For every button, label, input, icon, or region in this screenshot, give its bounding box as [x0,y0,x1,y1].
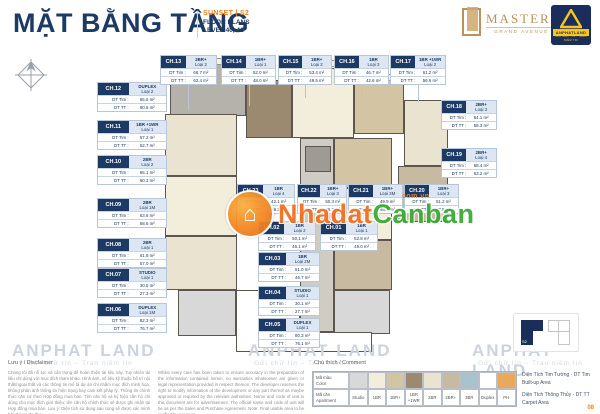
area-value-tt: 57.0 m² [129,261,166,266]
unit-card-CH.09: CH.092BRLoại 1MDT Tim :63.6 m²DT TT :58.… [97,198,167,228]
area-value-tim: 68.4 m² [466,163,496,168]
area-value-tim: 66.7 m² [186,70,216,75]
area-value-tt: 48.0 m² [246,78,275,83]
masteri-logo: MASTERI GRAND AVENUE [462,8,557,36]
area-row-tt: DT TT :62.4 m² [161,76,216,84]
card-leader-line [188,82,189,110]
area-row-tt: DT TT :49.0 m² [321,242,377,250]
area-label-tt: DT TT : [222,78,246,83]
disclaimer-vietnamese: Chúng tôi đã nỗ lực và cẩn trọng để hoàn… [8,370,150,414]
unit-type-variant: Loại 2 [141,162,153,167]
unit-type: 1BR+Loại 1 [246,56,275,68]
unit-code: CH.17 [391,56,415,68]
legend-table: Mã màu ColorMã căn ApartmentStudio1BR1BR… [312,371,517,407]
unit-type: STUDIOLoại 1 [129,269,166,281]
unit-card-header: CH.132BR+Loại 2 [161,56,216,68]
unit-card-CH.16: CH.161BRLoại 3DT Tim :46.7 m²DT TT :42.6… [334,55,389,85]
legend-swatch-2BR+ [442,372,461,389]
area-value-tt: 27.7 m² [286,309,319,314]
card-leader-line [418,82,419,102]
unit-type: DUPLEXLoại 1 [286,319,319,331]
area-label-tim: DT Tim : [98,253,129,258]
floor-plan-page: MẶT BẰNG TẦNG SUNSET | S2 FLOOR PLANS LE… [0,0,600,414]
unit-card-header: CH.04STUDIOLoại 1 [259,287,319,299]
area-label-tim: DT Tim : [98,283,129,288]
area-label-tt: DT TT : [98,291,129,296]
area-value-tt: 27.3 m² [129,291,166,296]
unit-code: CH.11 [98,121,129,133]
unit-card-header: CH.05DUPLEXLoại 1 [259,319,319,331]
carpet-area-note: Diện Tích Thông Thủy - DT TT Carpet Area [522,392,590,407]
legend-swatch-Duplex [479,372,498,389]
disclaimer-english: Whilst every care has been taken to ensu… [158,370,304,414]
area-label-tim: DT Tim : [259,301,286,306]
area-row-tim: DT Tim :65.1 m² [98,168,166,176]
area-row-tt: DT TT :63.2 m² [442,169,496,177]
anphatland-watermark-slogan: Gửi chữ tín – Trao niềm tin [478,360,583,367]
area-row-tt: DT TT :58.3 m² [442,121,496,129]
area-value-tim: 61.8 m² [129,253,166,258]
area-label-tt: DT TT : [98,221,129,226]
unit-code: CH.06 [98,304,129,316]
masteri-logo-name: MASTERI [486,11,557,27]
unit-type: 2BR+Loại 4 [466,149,496,161]
area-label-tim: DT Tim : [98,318,129,323]
masteri-logo-icon [462,8,481,36]
area-label-tim: DT Tim : [98,170,129,175]
keyplan-thumbnail: S2 [513,313,579,352]
area-value-tim: 65.1 m² [129,170,166,175]
unit-type-variant: Loại 2 [195,62,207,67]
legend-swatch-1BR [368,372,387,389]
unit-type-variant: Loại 1 [141,275,153,280]
anphatland-watermark-text: ANPHAT LAND [12,341,156,361]
plan-unit-block [178,290,236,336]
unit-type-variant: Loại 1M [139,205,155,210]
unit-card-header: CH.171BR +1WRLoại 2 [391,56,445,68]
anphatland-logo: ANPHATLAND GỬI CHỮ TÍN - TRAO NIỀM TIN [551,5,591,45]
area-row-tim: DT Tim :52.0 m² [222,68,275,76]
nhadatcanban-watermark: ⌂ NhadatCanban com.vn [226,190,475,238]
plan-unit-block [246,80,292,138]
unit-code: CH.15 [279,56,302,68]
plan-unit-block [165,236,237,290]
unit-code: CH.03 [259,253,286,265]
unit-type-variant: Loại 1 [297,293,309,298]
unit-card-CH.19: CH.192BR+Loại 4DT Tim :68.4 m²DT TT :63.… [441,148,497,178]
floor-plans-label: FLOOR PLANS [203,19,250,27]
unit-code: CH.10 [98,156,129,168]
project-name: SUNSET | S2 [203,10,250,19]
unit-type: 2BRLoại 1 [129,239,166,251]
unit-card-header: CH.102BRLoại 2 [98,156,166,168]
unit-type-variant: Loại 1 [141,245,153,250]
unit-card-CH.05: CH.05DUPLEXLoại 1DT Tim :80.3 m²DT TT :7… [258,318,320,348]
unit-card-header: CH.031BRLoại 2M [259,253,319,265]
area-label-tt: DT TT : [98,178,129,183]
area-value-tim: 51.0 m² [286,267,319,272]
unit-type-variant: Loại 1 [254,62,266,67]
area-label-tt: DT TT : [442,171,466,176]
area-value-tim: 46.7 m² [359,70,388,75]
area-row-tt: DT TT :42.6 m² [335,76,388,84]
area-label-tim: DT Tim : [98,135,129,140]
unit-type-variant: Loại 3 [367,62,379,67]
area-label-tt: DT TT : [259,275,286,280]
unit-card-CH.13: CH.132BR+Loại 2DT Tim :66.7 m²DT TT :62.… [160,55,217,85]
area-row-tim: DT Tim :63.6 m² [98,211,166,219]
unit-type: 2BRLoại 2 [129,156,166,168]
unit-card-CH.14: CH.141BR+Loại 1DT Tim :52.0 m²DT TT :48.… [221,55,276,85]
page-number: 08 [587,405,594,411]
unit-type-variant: Loại 4 [475,155,487,160]
unit-type: 1BR +1WRLoại 1 [129,121,166,133]
unit-type-variant: Loại 2 [141,89,153,94]
card-leader-line [249,82,250,106]
legend-swatch-PH [497,372,516,389]
compass-icon [13,57,49,93]
unit-type-variant: Loại 2 [311,62,323,67]
area-row-tt: DT TT :48.0 m² [222,76,275,84]
legend-type-label: Studio [349,389,368,406]
area-label-tim: DT Tim : [98,213,129,218]
area-row-tim: DT Tim :80.3 m² [259,331,319,339]
unit-code: CH.04 [259,287,286,299]
unit-type: 2BR+Loại 2 [186,56,216,68]
area-row-tt: DT TT :56.6 m² [391,76,445,84]
unit-type-variant: Loại 2 [424,62,436,67]
area-label-tt: DT TT : [442,123,466,128]
area-row-tt: DT TT :60.3 m² [98,176,166,184]
plan-unit-block [305,146,331,172]
keyplan-tower-outline [558,320,570,345]
area-row-tt: DT TT :46.7 m² [259,273,319,281]
header-info: SUNSET | S2 FLOOR PLANS LEVEL 40, 42 [203,10,250,35]
unit-card-header: CH.12DUPLEXLoại 2 [98,83,166,95]
area-value-tim: 63.6 m² [129,213,166,218]
unit-code: CH.07 [98,269,129,281]
area-row-tim: DT Tim :68.4 m² [442,161,496,169]
legend-type-label: Duplex [479,389,498,406]
area-label-tt: DT TT : [259,341,286,346]
area-row-tim: DT Tim :82.3 m² [98,316,166,324]
builtup-area-note: Diện Tích Tim Tường - DT Tim Built-up Ar… [522,372,590,387]
area-row-tim: DT Tim :61.2 m² [391,68,445,76]
level-label: LEVEL 40, 42 [203,27,250,35]
area-label-tim: DT Tim : [442,163,466,168]
unit-card-CH.12: CH.12DUPLEXLoại 2DT Tim :65.6 m²DT TT :6… [97,82,167,112]
area-row-tim: DT Tim :61.8 m² [98,251,166,259]
area-label-tim: DT Tim : [442,115,466,120]
unit-type: DUPLEXLoại 1M [129,304,166,316]
area-value-tim: 30.5 m² [129,283,166,288]
area-row-tim: DT Tim :53.4 m² [279,68,331,76]
area-label-tt: DT TT : [98,143,129,148]
anphat-triangle-icon [560,9,582,29]
unit-card-CH.11: CH.111BR +1WRLoại 1DT Tim :57.2 m²DT TT … [97,120,167,150]
area-value-tt: 49.0 m² [346,244,377,249]
area-label-tim: DT Tim : [222,70,246,75]
area-label-tt: DT TT : [259,309,286,314]
unit-code: CH.19 [442,149,466,161]
unit-type: 2BR+Loại 3 [466,101,496,113]
area-value-tim: 57.2 m² [129,135,166,140]
unit-card-CH.10: CH.102BRLoại 2DT Tim :65.1 m²DT TT :60.3… [97,155,167,185]
area-value-tt: 60.6 m² [129,105,166,110]
unit-type: 1BRLoại 2M [286,253,319,265]
area-value-tt: 63.2 m² [466,171,496,176]
unit-card-CH.15: CH.151BR+Loại 2DT Tim :53.4 m²DT TT :49.… [278,55,332,85]
unit-code: CH.08 [98,239,129,251]
watermark-text-orange: Nhadat [278,199,373,229]
unit-card-header: CH.07STUDIOLoại 1 [98,269,166,281]
area-label-tt: DT TT : [98,326,129,331]
area-row-tt: DT TT :76.1 m² [259,339,319,347]
keyplan-label: S2 [522,339,527,344]
watermark-text-green: Canban [373,199,475,229]
legend-apartment-row-label: Mã căn Apartment [313,389,349,406]
area-label-tim: DT Tim : [279,70,302,75]
area-label-tt: DT TT : [335,78,359,83]
nhadatcanban-wordmark: NhadatCanban com.vn [278,199,475,230]
unit-card-header: CH.182BR+Loại 3 [442,101,496,113]
area-row-tim: DT Tim :51.0 m² [259,265,319,273]
nhadatcanban-logo-icon: ⌂ [226,190,274,238]
unit-type: 1BRLoại 3 [359,56,388,68]
area-row-tim: DT Tim :30.5 m² [98,281,166,289]
area-label-tim: DT Tim : [259,267,286,272]
area-label-tt: DT TT : [161,78,186,83]
area-label-tt: DT TT : [259,244,284,249]
area-row-tim: DT Tim :66.7 m² [161,68,216,76]
area-value-tt: 46.1 m² [284,244,315,249]
area-row-tt: DT TT :49.5 m² [279,76,331,84]
area-value-tt: 49.5 m² [302,78,331,83]
unit-card-header: CH.161BRLoại 3 [335,56,388,68]
unit-card-CH.08: CH.082BRLoại 1DT Tim :61.8 m²DT TT :57.0… [97,238,167,268]
unit-card-CH.03: CH.031BRLoại 2MDT Tim :51.0 m²DT TT :46.… [258,252,320,282]
unit-code: CH.09 [98,199,129,211]
area-row-tim: DT Tim :46.7 m² [335,68,388,76]
area-value-tt: 46.7 m² [286,275,319,280]
legend-type-label: 1BR+ [386,389,405,406]
legend-heading: Chú thích / Comment [314,360,366,366]
disclaimer-heading: Lưu ý / Disclaimer [8,360,53,366]
unit-card-CH.17: CH.171BR +1WRLoại 2DT Tim :61.2 m²DT TT … [390,55,446,85]
area-row-tim: DT Tim :64.1 m² [442,113,496,121]
area-label-tim: DT Tim : [259,333,286,338]
unit-code: CH.18 [442,101,466,113]
anphat-logo-tagline: GỬI CHỮ TÍN - TRAO NIỀM TIN [551,34,591,42]
legend-type-label: 3BR [460,389,479,406]
unit-card-CH.18: CH.182BR+Loại 3DT Tim :64.1 m²DT TT :58.… [441,100,497,130]
header-divider [197,11,198,38]
unit-card-CH.07: CH.07STUDIOLoại 1DT Tim :30.5 m²DT TT :2… [97,268,167,298]
area-value-tim: 80.3 m² [286,333,319,338]
unit-code: CH.05 [259,319,286,331]
unit-card-header: CH.141BR+Loại 1 [222,56,275,68]
unit-type-variant: Loại 1M [139,310,155,315]
area-label-tim: DT Tim : [161,70,186,75]
legend-swatch-3BR [460,372,479,389]
area-value-tim: 65.6 m² [129,97,166,102]
area-value-tim: 64.1 m² [466,115,496,120]
plan-unit-block [165,114,237,176]
legend-type-label: 2BR [423,389,442,406]
unit-card-header: CH.082BRLoại 1 [98,239,166,251]
legend-color-row-label: Mã màu Color [313,372,349,389]
legend-type-label: PH [497,389,516,406]
area-row-tim: DT Tim :30.1 m² [259,299,319,307]
area-label-tt: DT TT : [98,105,129,110]
area-label-tt: DT TT : [98,261,129,266]
area-row-tt: DT TT :58.6 m² [98,219,166,227]
area-value-tim: 53.4 m² [302,70,331,75]
watermark-domain: com.vn [402,193,430,200]
area-value-tt: 56.6 m² [415,78,445,83]
unit-type-variant: Loại 1 [297,325,309,330]
area-label-tim: DT Tim : [391,70,415,75]
area-label-tt: DT TT : [391,78,415,83]
area-value-tt: 76.1 m² [286,341,319,346]
area-row-tt: DT TT :27.7 m² [259,307,319,315]
unit-card-CH.04: CH.04STUDIOLoại 1DT Tim :30.1 m²DT TT :2… [258,286,320,316]
area-label-tt: DT TT : [321,244,346,249]
unit-type: 1BR +1WRLoại 2 [415,56,445,68]
area-row-tt: DT TT :57.0 m² [98,259,166,267]
unit-code: CH.14 [222,56,246,68]
unit-type-variant: Loại 3 [475,107,487,112]
unit-card-CH.06: CH.06DUPLEXLoại 1MDT Tim :82.3 m²DT TT :… [97,303,167,333]
area-value-tt: 42.6 m² [359,78,388,83]
unit-card-header: CH.06DUPLEXLoại 1M [98,304,166,316]
plan-unit-block [334,138,392,188]
area-label-tim: DT Tim : [98,97,129,102]
unit-type-variant: Loại 1 [141,127,153,132]
area-row-tim: DT Tim :65.6 m² [98,95,166,103]
area-row-tt: DT TT :60.6 m² [98,103,166,111]
area-value-tim: 30.1 m² [286,301,319,306]
area-value-tt: 76.7 m² [129,326,166,331]
unit-card-header: CH.151BR+Loại 2 [279,56,331,68]
unit-type: 1BR+Loại 2 [302,56,331,68]
area-row-tt: DT TT :46.1 m² [259,242,315,250]
area-row-tt: DT TT :27.3 m² [98,289,166,297]
area-value-tt: 58.3 m² [466,123,496,128]
area-row-tt: DT TT :52.7 m² [98,141,166,149]
unit-type: STUDIOLoại 1 [286,287,319,299]
area-row-tim: DT Tim :57.2 m² [98,133,166,141]
legend-swatch-Studio [349,372,368,389]
legend-swatch-2BR [423,372,442,389]
unit-code: CH.16 [335,56,359,68]
area-row-tt: DT TT :76.7 m² [98,324,166,332]
area-value-tt: 62.4 m² [186,78,216,83]
area-value-tt: 58.6 m² [129,221,166,226]
area-label-tt: DT TT : [279,78,302,83]
legend-swatch-1BR +1WR [405,372,424,389]
unit-code: CH.13 [161,56,186,68]
area-value-tim: 52.0 m² [246,70,275,75]
area-value-tim: 82.3 m² [129,318,166,323]
plan-unit-block [334,290,390,334]
legend-type-label: 1BR +1WR [405,389,424,406]
area-value-tim: 61.2 m² [415,70,445,75]
legend-type-label: 1BR [368,389,387,406]
unit-card-header: CH.192BR+Loại 4 [442,149,496,161]
legend-type-label: 2BR+ [442,389,461,406]
area-label-tim: DT Tim : [335,70,359,75]
area-value-tt: 60.3 m² [129,178,166,183]
unit-type: 2BRLoại 1M [129,199,166,211]
unit-card-header: CH.092BRLoại 1M [98,199,166,211]
unit-card-header: CH.111BR +1WRLoại 1 [98,121,166,133]
unit-type-variant: Loại 2M [295,259,311,264]
masteri-logo-sub: GRAND AVENUE [486,27,557,34]
unit-code: CH.12 [98,83,129,95]
area-value-tt: 52.7 m² [129,143,166,148]
legend-swatch-1BR+ [386,372,405,389]
